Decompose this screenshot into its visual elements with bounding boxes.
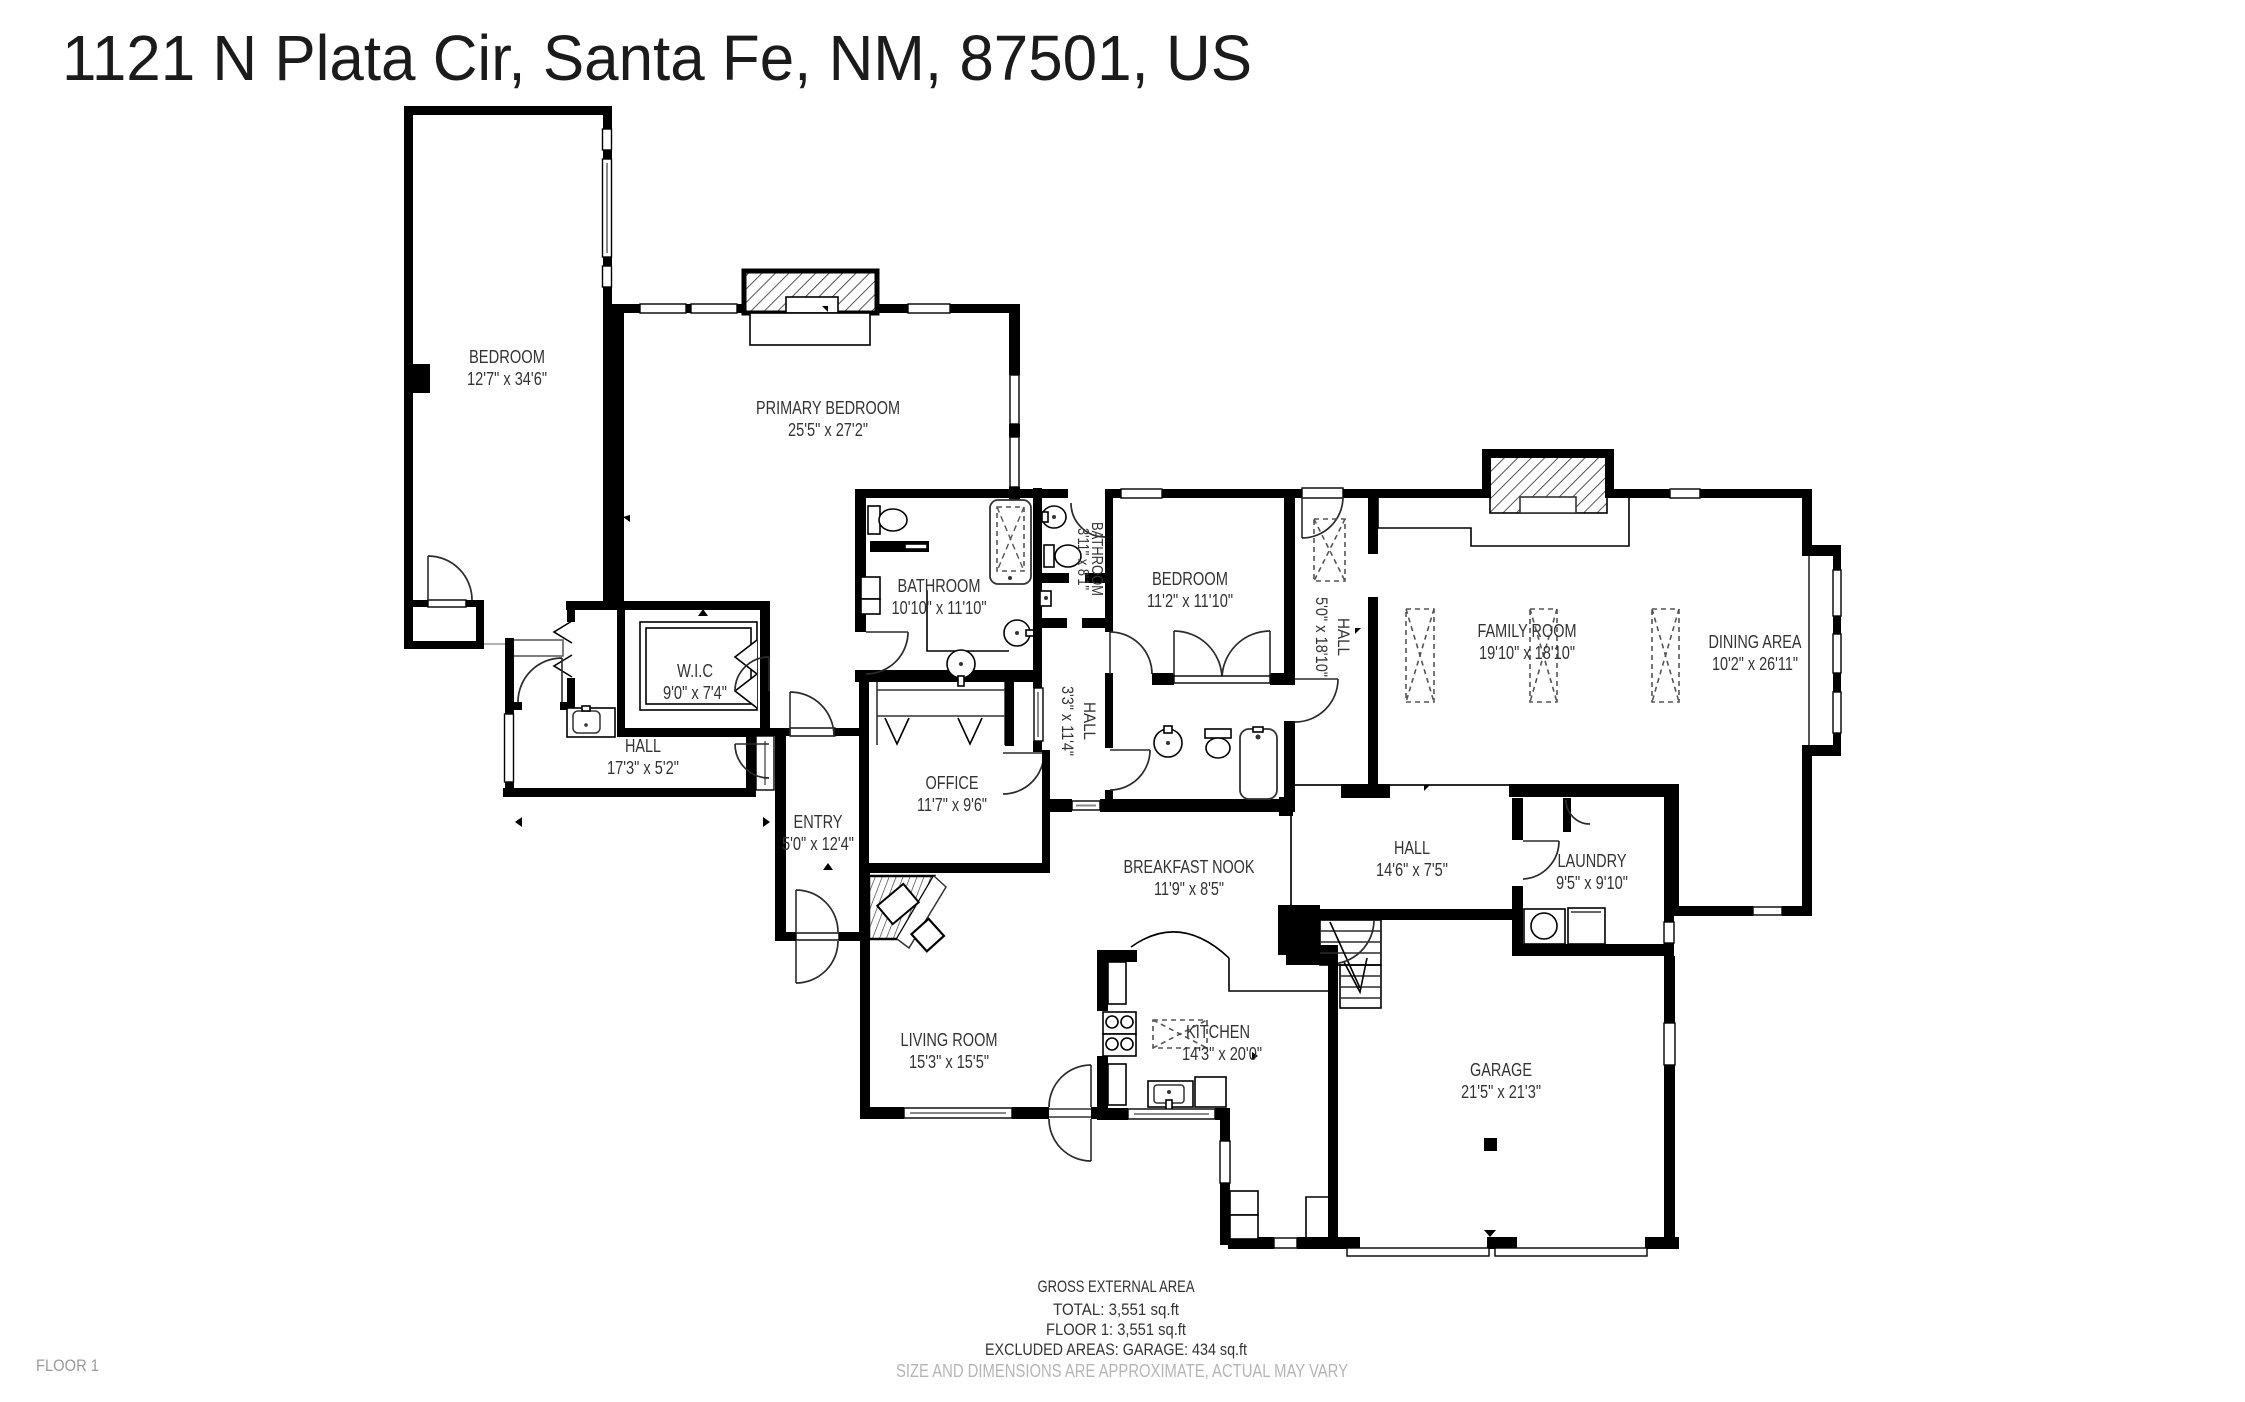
svg-text:FAMILY ROOM: FAMILY ROOM <box>1478 621 1577 641</box>
svg-text:14'3" x 20'0": 14'3" x 20'0" <box>1182 1044 1262 1064</box>
svg-text:3'11" x 8'1": 3'11" x 8'1" <box>1074 528 1091 590</box>
svg-text:3'3" x 11'4": 3'3" x 11'4" <box>1058 686 1077 756</box>
svg-text:GROSS EXTERNAL AREA: GROSS EXTERNAL AREA <box>1038 1277 1195 1296</box>
svg-text:25'5" x 27'2": 25'5" x 27'2" <box>788 420 868 440</box>
svg-text:PRIMARY BEDROOM: PRIMARY BEDROOM <box>756 398 900 418</box>
svg-text:GARAGE: GARAGE <box>1470 1060 1532 1080</box>
svg-text:HALL: HALL <box>1334 618 1353 656</box>
svg-text:10'10" x 11'10": 10'10" x 11'10" <box>892 598 987 618</box>
svg-text:5'0" x 12'4": 5'0" x 12'4" <box>782 834 854 854</box>
svg-text:BEDROOM: BEDROOM <box>1152 569 1228 589</box>
svg-text:KITCHEN: KITCHEN <box>1186 1022 1250 1042</box>
svg-text:SIZE AND DIMENSIONS ARE APPROX: SIZE AND DIMENSIONS ARE APPROXIMATE, ACT… <box>896 1361 1348 1381</box>
svg-text:BATHROOM: BATHROOM <box>898 576 981 596</box>
svg-text:TOTAL: 3,551 sq.ft: TOTAL: 3,551 sq.ft <box>1053 1300 1179 1319</box>
svg-text:1121 N Plata Cir, Santa Fe, NM: 1121 N Plata Cir, Santa Fe, NM, 87501, U… <box>62 22 1252 94</box>
svg-text:ENTRY: ENTRY <box>794 812 843 832</box>
svg-text:HALL: HALL <box>625 736 661 756</box>
svg-text:9'5" x 9'10": 9'5" x 9'10" <box>1556 873 1628 893</box>
svg-text:9'0" x 7'4": 9'0" x 7'4" <box>663 683 727 703</box>
svg-text:5'0" x 18'10": 5'0" x 18'10" <box>1312 597 1331 677</box>
svg-text:11'2" x 11'10": 11'2" x 11'10" <box>1147 591 1233 611</box>
svg-text:LIVING ROOM: LIVING ROOM <box>901 1030 998 1050</box>
svg-text:DINING AREA: DINING AREA <box>1709 632 1802 652</box>
svg-text:19'10" x 18'10": 19'10" x 18'10" <box>1479 643 1575 663</box>
svg-text:14'6" x 7'5": 14'6" x 7'5" <box>1376 860 1448 880</box>
svg-text:W.I.C: W.I.C <box>677 661 713 681</box>
svg-text:10'2" x 26'11": 10'2" x 26'11" <box>1712 654 1798 674</box>
svg-text:15'3" x 15'5": 15'3" x 15'5" <box>909 1052 989 1072</box>
svg-text:17'3" x 5'2": 17'3" x 5'2" <box>607 758 679 778</box>
svg-text:HALL: HALL <box>1394 838 1430 858</box>
svg-text:12'7" x 34'6": 12'7" x 34'6" <box>467 369 547 389</box>
svg-text:FLOOR 1: FLOOR 1 <box>36 1356 99 1375</box>
svg-text:11'7" x 9'6": 11'7" x 9'6" <box>917 795 987 815</box>
svg-text:LAUNDRY: LAUNDRY <box>1558 851 1627 871</box>
svg-text:HALL: HALL <box>1080 702 1099 740</box>
svg-text:21'5" x 21'3": 21'5" x 21'3" <box>1461 1082 1541 1102</box>
svg-text:11'9" x 8'5": 11'9" x 8'5" <box>1154 879 1224 899</box>
svg-text:BREAKFAST NOOK: BREAKFAST NOOK <box>1124 857 1255 877</box>
svg-text:BEDROOM: BEDROOM <box>469 347 545 367</box>
svg-text:EXCLUDED AREAS: GARAGE: 434 sq: EXCLUDED AREAS: GARAGE: 434 sq.ft <box>985 1340 1247 1359</box>
svg-text:FLOOR 1: 3,551 sq.ft: FLOOR 1: 3,551 sq.ft <box>1046 1320 1186 1339</box>
svg-text:OFFICE: OFFICE <box>926 773 979 793</box>
